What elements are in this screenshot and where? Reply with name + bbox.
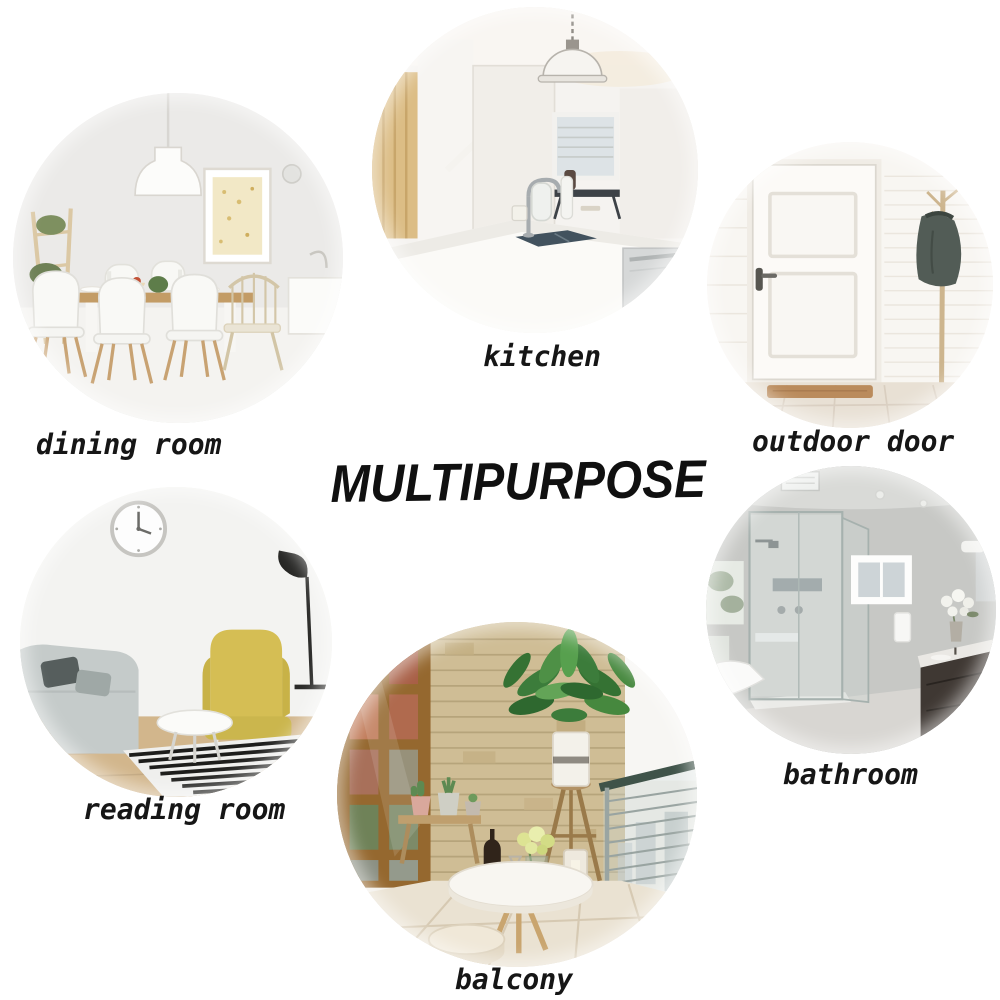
door-lever xyxy=(761,274,777,278)
white-wall xyxy=(625,622,697,781)
white-column xyxy=(418,40,473,255)
dining-room-label: dining room xyxy=(36,429,221,461)
door-handle xyxy=(756,268,763,291)
dining-room-photo xyxy=(13,93,343,423)
door xyxy=(747,159,881,385)
window xyxy=(851,555,912,604)
dining-room-illustration xyxy=(13,93,343,423)
vanity xyxy=(918,639,996,754)
balcony-label: balcony xyxy=(455,964,573,996)
glass-shower xyxy=(750,512,869,702)
bathroom-illustration xyxy=(706,466,996,754)
kitchen-label: kitchen xyxy=(483,341,601,373)
mirror xyxy=(976,547,996,602)
glass-door xyxy=(337,625,431,887)
sofa xyxy=(20,644,139,753)
far-wall xyxy=(620,89,698,239)
product-collage: dining room kitchen outdoor door reading… xyxy=(0,0,1000,1000)
wall-art xyxy=(204,169,270,263)
wall-clock xyxy=(112,503,165,556)
ceiling xyxy=(706,466,996,509)
outdoor-door-label: outdoor door xyxy=(752,426,954,458)
stool xyxy=(429,925,505,966)
outdoor-door-photo xyxy=(707,142,993,428)
ceiling-vent xyxy=(781,472,819,491)
window xyxy=(555,115,617,179)
reading-room-label: reading room xyxy=(83,794,285,826)
outdoor-door-illustration xyxy=(707,142,993,428)
dishwasher xyxy=(623,248,685,313)
balcony-illustration xyxy=(337,622,697,967)
recessed-light xyxy=(920,500,927,507)
wood-stairwell xyxy=(372,72,418,238)
jacket xyxy=(916,214,961,286)
bathroom-label: bathroom xyxy=(783,759,918,791)
kitchen-photo xyxy=(372,7,698,333)
reading-room-illustration xyxy=(20,487,332,797)
sconce-light xyxy=(961,541,984,553)
balcony-photo xyxy=(337,622,697,967)
round-mirror xyxy=(283,165,301,183)
reading-room-photo xyxy=(20,487,332,797)
bathroom-photo xyxy=(706,466,996,754)
towel xyxy=(895,613,911,642)
recessed-light xyxy=(876,490,885,499)
kitchen-illustration xyxy=(372,7,698,333)
collage-title: MULTIPURPOSE xyxy=(330,451,706,515)
